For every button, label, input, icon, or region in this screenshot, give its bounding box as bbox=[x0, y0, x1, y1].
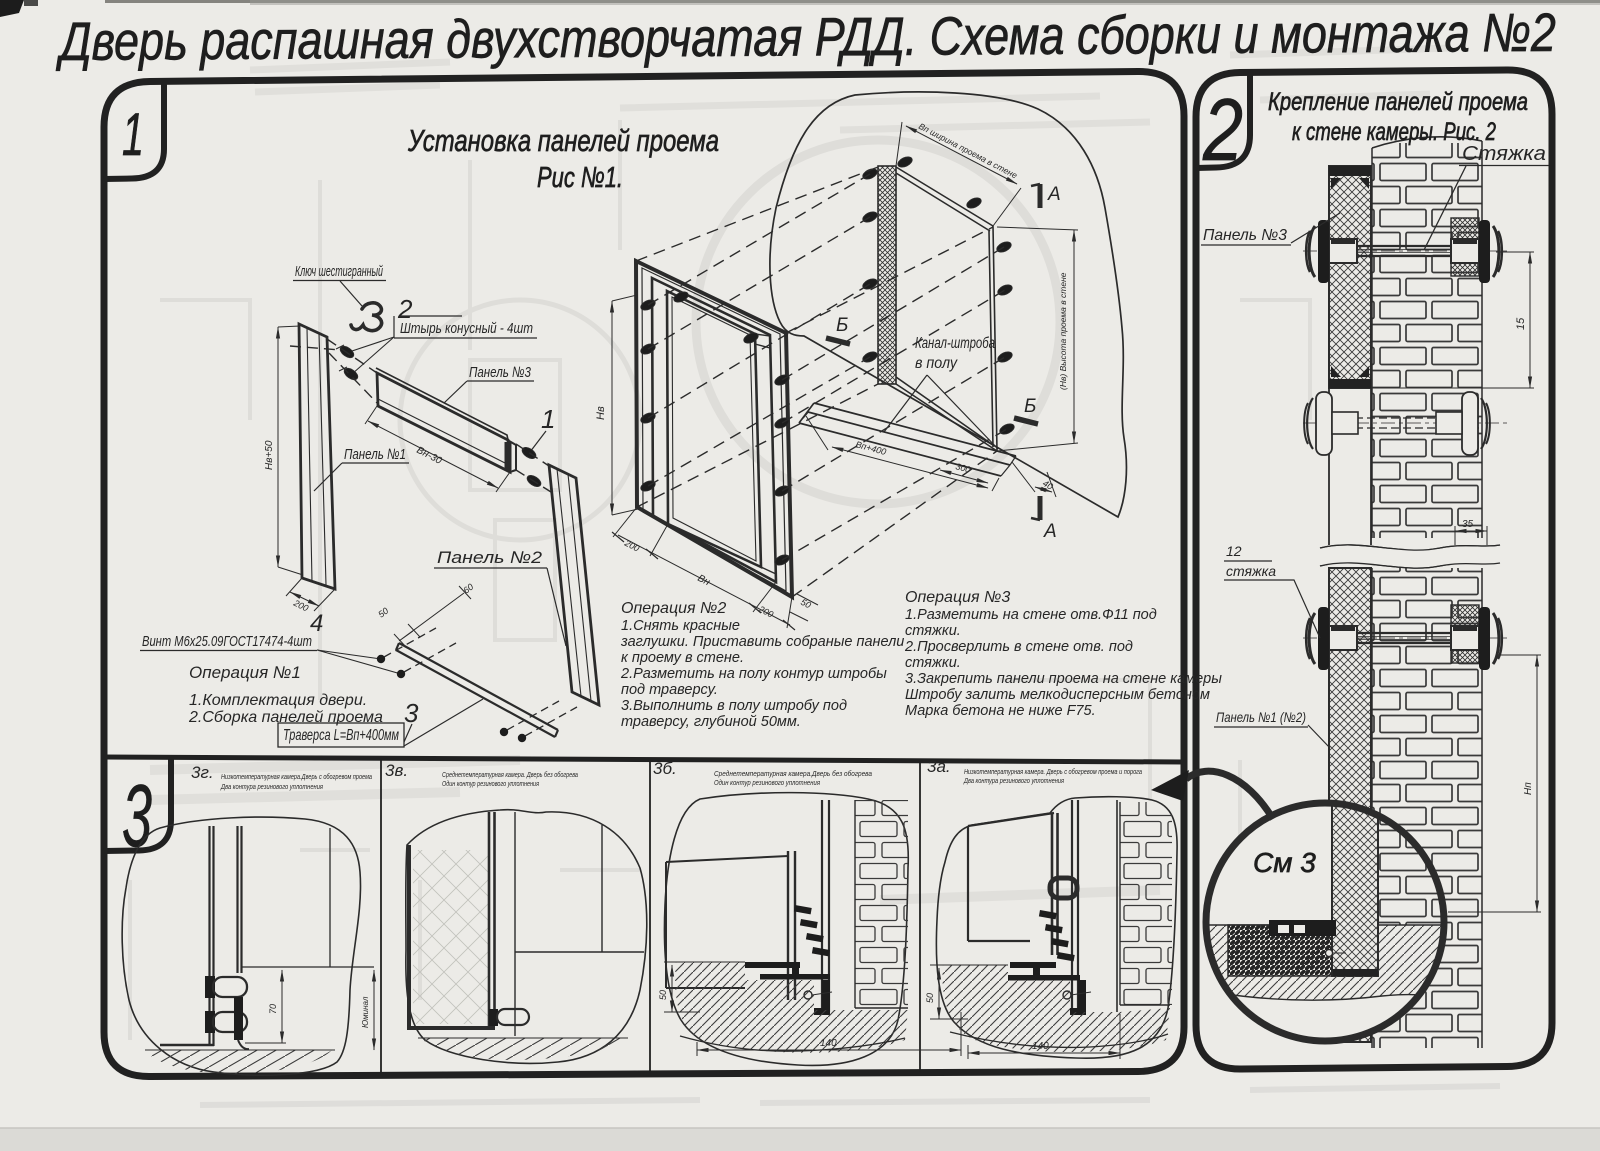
svg-text:Нп: Нп bbox=[1523, 782, 1534, 795]
svg-text:3.Закрепить панели проема на с: 3.Закрепить панели проема на стене камер… bbox=[905, 671, 1222, 687]
svg-text:стяжка: стяжка bbox=[1226, 563, 1276, 579]
svg-text:Нв: Нв bbox=[595, 406, 607, 420]
svg-text:к проему в стене.: к проему в стене. bbox=[621, 650, 744, 666]
svg-text:А: А bbox=[1047, 184, 1061, 205]
svg-text:Среднетемпературная камера. Дв: Среднетемпературная камера. Дверь без об… bbox=[442, 771, 578, 779]
svg-text:3: 3 bbox=[404, 698, 419, 728]
svg-text:140: 140 bbox=[820, 1038, 837, 1049]
svg-text:в полу: в полу bbox=[915, 355, 958, 372]
svg-text:заглушки. Приставить собраные: заглушки. Приставить собраные панели bbox=[620, 634, 904, 650]
svg-text:Панель №3: Панель №3 bbox=[1203, 227, 1287, 244]
svg-text:2: 2 bbox=[1202, 80, 1243, 179]
svg-text:Юминал: Юминал bbox=[361, 996, 370, 1028]
svg-text:Два контура резинового уплотне: Два контура резинового уплотнения bbox=[963, 778, 1064, 785]
svg-text:стяжки.: стяжки. bbox=[905, 655, 961, 671]
svg-text:Б: Б bbox=[1024, 396, 1036, 417]
svg-text:3б.: 3б. bbox=[653, 759, 677, 778]
svg-text:1: 1 bbox=[122, 101, 144, 168]
svg-text:траверсу, глубиной 50мм.: траверсу, глубиной 50мм. bbox=[621, 714, 801, 730]
svg-text:Панель №3: Панель №3 bbox=[469, 364, 531, 381]
svg-text:2.Разметить на полу контур штр: 2.Разметить на полу контур штробы bbox=[620, 666, 887, 682]
svg-text:Стяжка: Стяжка bbox=[1462, 143, 1546, 165]
svg-text:Низкотемпературная камера.Двер: Низкотемпературная камера.Дверь с обогре… bbox=[221, 773, 372, 781]
svg-text:15: 15 bbox=[1515, 317, 1527, 330]
svg-text:Крепление панелей проема: Крепление панелей проема bbox=[1268, 88, 1528, 116]
svg-text:Панель №2: Панель №2 bbox=[437, 548, 543, 567]
svg-text:Б: Б bbox=[836, 315, 848, 336]
svg-text:Операция №2: Операция №2 bbox=[621, 600, 726, 617]
svg-text:1.Снять красные: 1.Снять красные bbox=[621, 618, 740, 634]
svg-text:А: А bbox=[1043, 521, 1057, 542]
svg-text:Штробу залить мелкодисперсным: Штробу залить мелкодисперсным бетоном bbox=[905, 687, 1210, 703]
svg-text:Операция №1: Операция №1 bbox=[189, 663, 301, 682]
svg-text:Панель №1 (№2): Панель №1 (№2) bbox=[1216, 709, 1306, 725]
svg-text:(Нв) Высота проема в стене: (Нв) Высота проема в стене bbox=[1058, 272, 1068, 390]
svg-text:Ключ шестигранный: Ключ шестигранный bbox=[295, 263, 383, 280]
svg-text:Рис №1.: Рис №1. bbox=[537, 162, 623, 194]
svg-text:Штырь конусный - 4шт: Штырь конусный - 4шт bbox=[400, 320, 533, 337]
svg-text:Дверь распашная двухстворчатая: Дверь распашная двухстворчатая РДД. Схем… bbox=[56, 3, 1557, 72]
svg-text:4: 4 bbox=[310, 610, 323, 637]
svg-text:См 3: См 3 bbox=[1253, 847, 1316, 878]
svg-text:под траверсу.: под траверсу. bbox=[621, 682, 718, 698]
svg-text:12: 12 bbox=[1226, 543, 1242, 559]
svg-text:1.Комплектация двери.: 1.Комплектация двери. bbox=[189, 692, 367, 709]
svg-text:Два контура резинового уплотне: Два контура резинового уплотнения bbox=[220, 784, 323, 791]
svg-text:к стене камеры. Рис. 2: к стене камеры. Рис. 2 bbox=[1292, 118, 1496, 146]
svg-text:35: 35 bbox=[1462, 519, 1474, 530]
svg-text:Операция №3: Операция №3 bbox=[905, 589, 1010, 606]
svg-text:Установка панелей проема: Установка панелей проема bbox=[407, 123, 719, 158]
svg-text:1: 1 bbox=[541, 404, 555, 434]
svg-text:3г.: 3г. bbox=[191, 763, 214, 782]
svg-text:Винт М6х25.09ГОСТ17474-4шт: Винт М6х25.09ГОСТ17474-4шт bbox=[142, 633, 312, 650]
svg-text:Среднетемпературная камера.Две: Среднетемпературная камера.Дверь без обо… bbox=[714, 770, 872, 778]
svg-text:140: 140 bbox=[1032, 1041, 1049, 1052]
svg-text:Канал-штроба: Канал-штроба bbox=[915, 335, 995, 352]
svg-text:1.Разметить на стене отв.Ф11 п: 1.Разметить на стене отв.Ф11 под bbox=[905, 607, 1157, 623]
svg-text:2.Просверлить в стене отв. по: 2.Просверлить в стене отв. под bbox=[904, 639, 1133, 655]
svg-text:Марка бетона не ниже F75.: Марка бетона не ниже F75. bbox=[905, 703, 1096, 719]
svg-text:Траверса L=Вп+400мм: Траверса L=Вп+400мм bbox=[283, 727, 399, 744]
svg-text:Панель №1: Панель №1 bbox=[344, 446, 406, 463]
svg-text:3а.: 3а. bbox=[927, 757, 951, 776]
svg-text:70: 70 bbox=[268, 1004, 278, 1014]
svg-text:Один контур резинового уплотне: Один контур резинового уплотнения bbox=[714, 779, 820, 787]
svg-text:Нв+50: Нв+50 bbox=[264, 440, 275, 470]
svg-text:50: 50 bbox=[658, 990, 668, 1000]
svg-text:3в.: 3в. bbox=[385, 761, 408, 780]
svg-text:Низкотемпературная камера. Две: Низкотемпературная камера. Дверь с обогр… bbox=[964, 768, 1142, 776]
svg-text:стяжки.: стяжки. bbox=[905, 623, 961, 639]
svg-text:Один контур резинового уплотне: Один контур резинового уплотнения bbox=[442, 780, 539, 788]
svg-text:3.Выполнить в полу штробу под: 3.Выполнить в полу штробу под bbox=[621, 698, 847, 714]
svg-text:50: 50 bbox=[925, 993, 935, 1003]
